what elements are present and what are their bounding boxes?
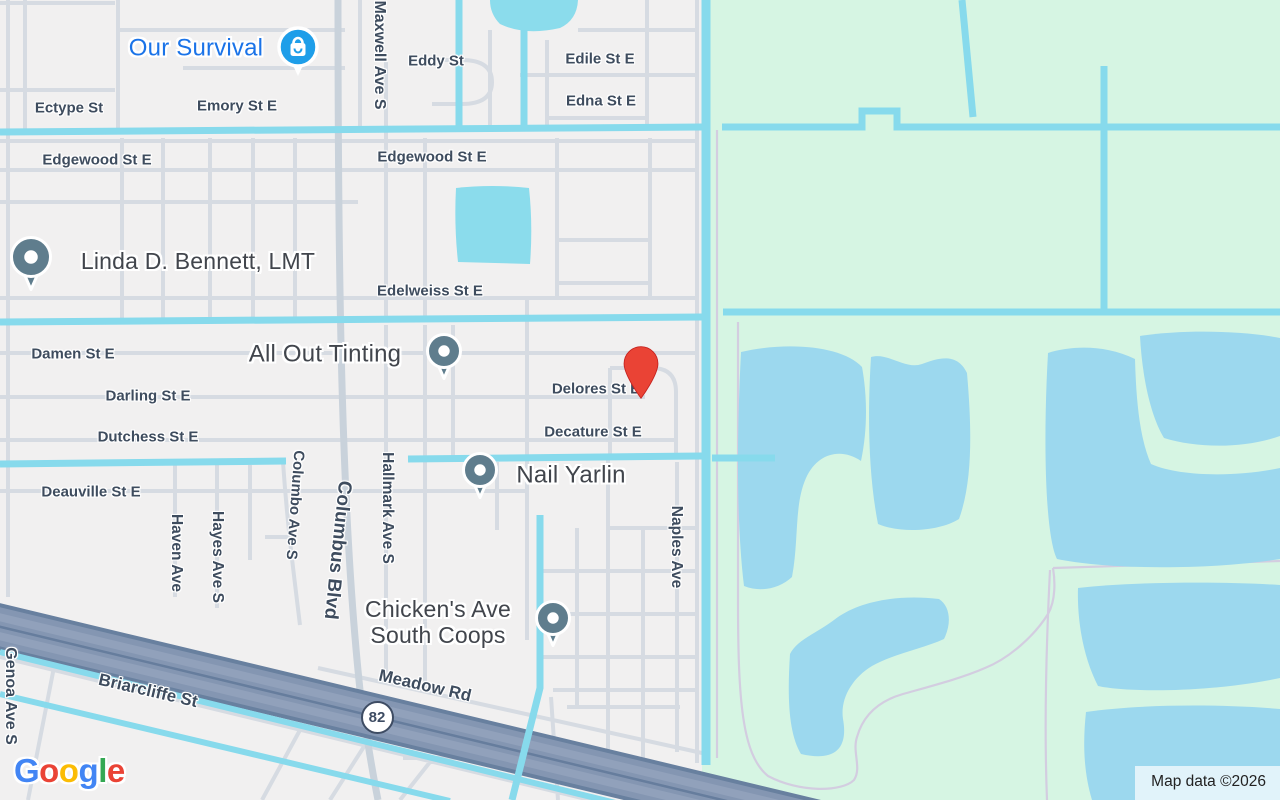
street-label: Edna St E: [566, 93, 636, 110]
street-label: Naples Ave: [667, 506, 685, 588]
circle-dot-pin-icon[interactable]: [443, 350, 445, 352]
circle-dot-pin-icon[interactable]: [552, 617, 554, 619]
street-label: Haven Ave: [167, 514, 185, 592]
poi-label[interactable]: All Out Tinting: [249, 340, 401, 367]
street-label: Edgewood St E: [377, 149, 486, 166]
google-logo-letter: l: [98, 752, 107, 789]
google-logo-letter: o: [39, 752, 59, 789]
street-label: Maxwell Ave S: [370, 0, 388, 109]
poi-label[interactable]: Nail Yarlin: [516, 461, 625, 488]
circle-dot-pin-icon[interactable]: [479, 469, 481, 471]
shopping-bag-pin-icon[interactable]: [297, 46, 299, 48]
route-shield: 82: [361, 701, 394, 734]
circle-dot-pin-icon[interactable]: [30, 256, 32, 258]
poi-label[interactable]: Linda D. Bennett, LMT: [81, 248, 315, 274]
street-label: Edgewood St E: [42, 152, 151, 169]
google-logo[interactable]: Google: [14, 752, 125, 790]
poi-label[interactable]: Chicken's AveSouth Coops: [365, 596, 511, 648]
base-map-svg: [0, 0, 1280, 800]
street-label: Genoa Ave S: [1, 647, 19, 745]
street-label: Dutchess St E: [98, 429, 199, 446]
map-attribution: Map data ©2026: [1135, 766, 1280, 800]
street-label: Edile St E: [565, 51, 634, 68]
street-label: Darling St E: [105, 388, 190, 405]
poi-label[interactable]: Our Survival: [129, 34, 263, 61]
street-label: Eddy St: [408, 53, 464, 70]
street-label: Hallmark Ave S: [378, 452, 396, 564]
google-logo-letter: o: [59, 752, 79, 789]
google-logo-letter: e: [107, 752, 125, 789]
street-label: Ectype St: [35, 100, 103, 117]
google-logo-letter: g: [79, 752, 99, 789]
street-label: Edelweiss St E: [377, 283, 483, 300]
red-map-pin-icon[interactable]: [623, 346, 659, 399]
street-label: Deauville St E: [41, 484, 140, 501]
street-label: Hayes Ave S: [208, 511, 226, 603]
street-label: Decature St E: [544, 424, 642, 441]
street-label: Damen St E: [31, 346, 114, 363]
google-logo-letter: G: [14, 752, 39, 789]
street-label: Emory St E: [197, 98, 277, 115]
map-canvas[interactable]: 82 Eddy StEdile St EEdna St EEctype StEm…: [0, 0, 1280, 800]
